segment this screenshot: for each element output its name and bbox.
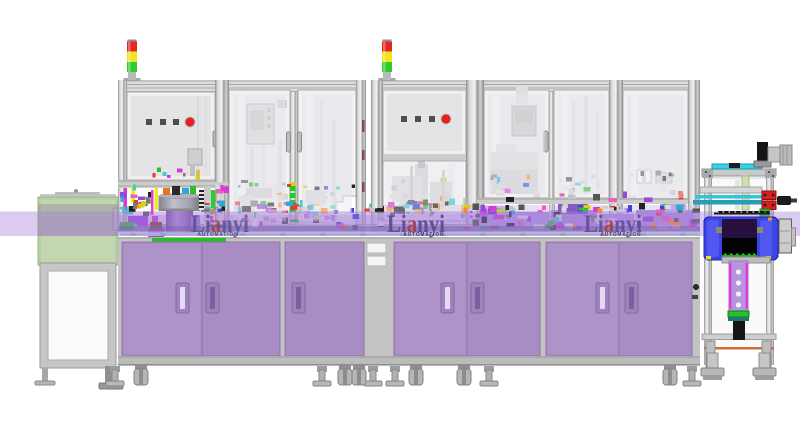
svg-text:AUTOMATION: AUTOMATION <box>198 232 239 238</box>
svg-text:AUTOMATION: AUTOMATION <box>404 232 445 238</box>
svg-text:AUTOMATION: AUTOMATION <box>601 232 642 238</box>
